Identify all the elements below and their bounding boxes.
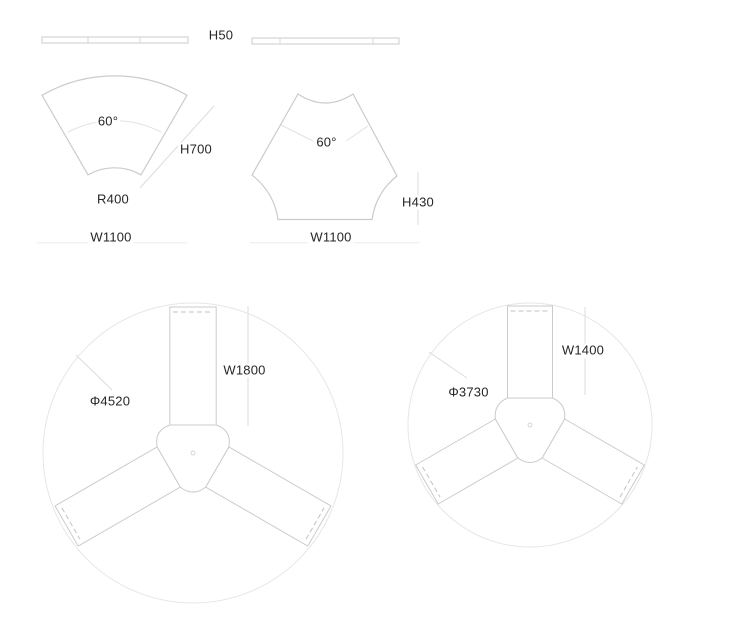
hex-desk-shape: [252, 94, 397, 220]
cluster-large-arm-left: [55, 447, 180, 546]
label-panel-h50: H50: [207, 29, 235, 44]
label-fan-h700: H700: [178, 142, 214, 157]
cluster-small: [408, 303, 652, 547]
label-hex-angle: 60°: [314, 135, 338, 150]
dim-line-phi3730: [429, 352, 467, 378]
label-cluster-small-diameter: Φ3730: [446, 385, 490, 400]
cluster-large: [43, 303, 343, 603]
label-cluster-large-desk-length: W1800: [221, 363, 267, 378]
label-cluster-large-diameter: Φ4520: [88, 395, 132, 410]
dim-line-phi4520: [76, 355, 112, 390]
label-cluster-small-desk-length: W1400: [560, 344, 606, 359]
cad-drawing-svg: [0, 0, 750, 621]
label-fan-angle: 60°: [96, 114, 120, 129]
cluster-large-arm-top: [170, 307, 216, 425]
panel-top-left: [42, 37, 188, 43]
drawing-canvas: H50 60° H700 R400 W1100 60° H430 W1100 Φ…: [0, 0, 750, 621]
label-hex-w1100: W1100: [308, 230, 353, 245]
cluster-small-arm-top: [508, 306, 553, 398]
label-fan-w1100: W1100: [88, 230, 133, 245]
cluster-large-arm-right: [206, 447, 331, 546]
label-fan-r400: R400: [95, 192, 131, 207]
label-hex-h430: H430: [400, 195, 436, 210]
panel-top-right: [252, 38, 399, 44]
